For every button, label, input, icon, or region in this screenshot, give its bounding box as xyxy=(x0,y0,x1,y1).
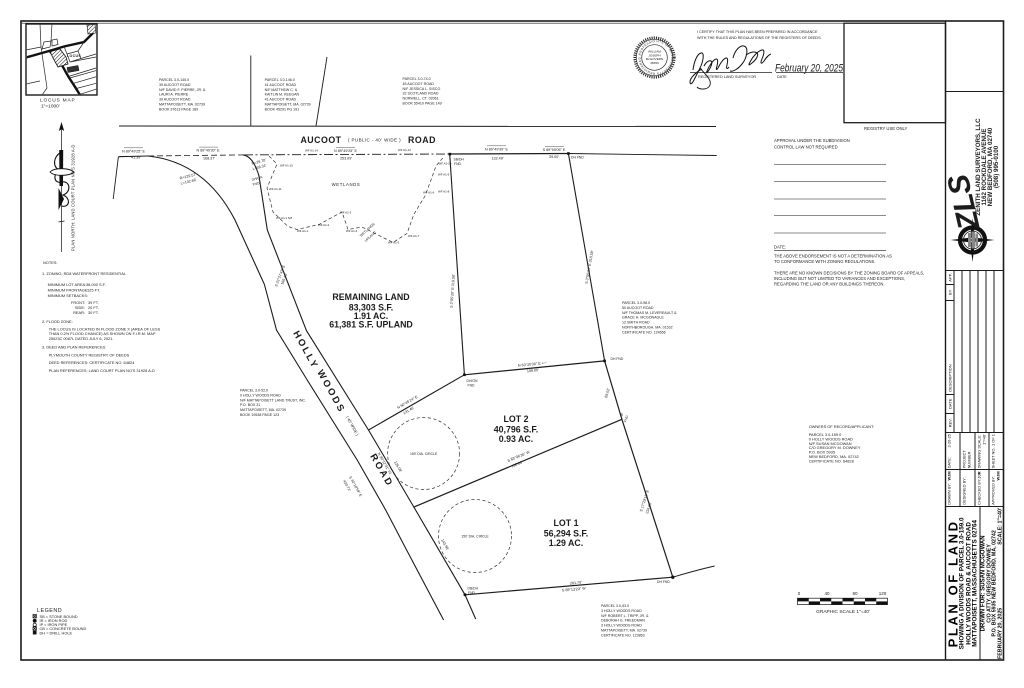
svg-text:NORWELL, CT. 02061: NORWELL, CT. 02061 xyxy=(403,97,439,101)
svg-text:PARCEL 3.0-146.0: PARCEL 3.0-146.0 xyxy=(265,78,295,82)
svg-text:32 SCOTLAND ROAD: 32 SCOTLAND ROAD xyxy=(403,92,439,96)
svg-text:APPROVAL UNDER THE SUBDIVISION: APPROVAL UNDER THE SUBDIVISION xyxy=(774,138,850,143)
svg-text:N 89°49'30" E: N 89°49'30" E xyxy=(485,147,509,151)
svg-text:WF A1-5: WF A1-5 xyxy=(388,241,400,245)
svg-text:INCLUDING BUT NOT LIMITED TO V: INCLUDING BUT NOT LIMITED TO VARIANCES A… xyxy=(774,276,905,281)
svg-text:36550: 36550 xyxy=(650,61,659,65)
svg-text:I CERTIFY THAT THIS PLAN HAS B: I CERTIFY THAT THIS PLAN HAS BEEN PREPAR… xyxy=(697,30,818,34)
svg-text:DH FND.: DH FND. xyxy=(657,580,671,584)
svg-text:0: 0 xyxy=(798,591,801,596)
svg-text:MATTAPOISETT, MA. 02739: MATTAPOISETT, MA. 02739 xyxy=(240,408,286,412)
svg-text:125 FT.: 125 FT. xyxy=(87,287,100,292)
svg-text:39 AUCOOT ROAD: 39 AUCOOT ROAD xyxy=(159,98,191,102)
svg-text:PARCEL 3.0-145.0: PARCEL 3.0-145.0 xyxy=(159,78,189,82)
svg-text:68.02': 68.02' xyxy=(604,387,611,398)
svg-text:CERTIFICATE NO. 123863: CERTIFICATE NO. 123863 xyxy=(601,633,645,637)
svg-text:GRACE H. MCGONAGLE: GRACE H. MCGONAGLE xyxy=(622,316,664,320)
svg-text:S 89°59'05" E: S 89°59'05" E xyxy=(543,148,566,152)
svg-text:N/F ROBERT L. TRIPP, JR. &: N/F ROBERT L. TRIPP, JR. & xyxy=(601,614,649,618)
svg-text:FND: FND xyxy=(468,591,476,595)
svg-text:PARCEL 3.0-93.0: PARCEL 3.0-93.0 xyxy=(601,604,629,608)
svg-text:N/F MATTHEW C. &: N/F MATTHEW C. & xyxy=(265,88,298,92)
svg-text:P.O. BOX 31: P.O. BOX 31 xyxy=(240,403,260,407)
svg-text:LOT 2: LOT 2 xyxy=(504,414,529,424)
svg-text:MATTAPOISETT, MA. 02739: MATTAPOISETT, MA. 02739 xyxy=(159,103,205,107)
svg-text:WF A1-14: WF A1-14 xyxy=(305,149,318,153)
svg-text:199.00': 199.00' xyxy=(527,368,540,373)
svg-text:N/F JESSICA L. SISCO: N/F JESSICA L. SISCO xyxy=(403,87,441,91)
svg-text:S 89°13'23" W: S 89°13'23" W xyxy=(562,586,587,592)
svg-text:WF A1-15: WF A1-15 xyxy=(280,164,293,168)
svg-text:56,294 S.F.: 56,294 S.F. xyxy=(544,529,589,539)
svg-text:N 89°49'30" E: N 89°49'30" E xyxy=(197,149,221,153)
svg-text:IP: IP xyxy=(620,412,625,417)
svg-text:40,796 S.F.: 40,796 S.F. xyxy=(494,425,539,435)
svg-text:SB/DH: SB/DH xyxy=(454,158,465,162)
svg-text:( 40' WIDE ): ( 40' WIDE ) xyxy=(345,415,360,437)
svg-text:150' DIA. CIRCLE: 150' DIA. CIRCLE xyxy=(461,535,489,539)
svg-text:WF A1-4: WF A1-4 xyxy=(346,229,358,233)
svg-text:TO CONFORMANCE WITH ZONING REG: TO CONFORMANCE WITH ZONING REGULATIONS. xyxy=(774,259,876,264)
svg-text:0.93 AC.: 0.93 AC. xyxy=(499,434,533,444)
svg-text:BOOK 55410 PAGE 149: BOOK 55410 PAGE 149 xyxy=(403,102,442,106)
svg-text:N 89°49'25" E: N 89°49'25" E xyxy=(334,149,358,153)
svg-text:WF A1-12: WF A1-12 xyxy=(398,148,411,152)
svg-text:WF A1-9: WF A1-9 xyxy=(438,173,450,177)
svg-text:WF A1-6: WF A1-6 xyxy=(423,191,435,195)
svg-text:39.00': 39.00' xyxy=(549,155,559,159)
svg-text:3 HOLLY WOODS ROAD: 3 HOLLY WOODS ROAD xyxy=(601,609,642,613)
svg-text:3 HOLLY WOODS ROAD: 3 HOLLY WOODS ROAD xyxy=(601,624,642,628)
svg-text:FND: FND xyxy=(468,384,476,388)
svg-text:BOOK 37613 PAGE 189: BOOK 37613 PAGE 189 xyxy=(159,107,198,111)
svg-text:120: 120 xyxy=(879,591,887,596)
svg-text:BOOK 45291 PG 191: BOOK 45291 PG 191 xyxy=(265,107,300,111)
svg-text:DEBORAH G. FREEDMAN: DEBORAH G. FREEDMAN xyxy=(601,619,645,623)
svg-text:131.46': 131.46' xyxy=(403,406,416,416)
svg-text:CONTROL LAW NOT REQUIRED: CONTROL LAW NOT REQUIRED xyxy=(774,145,838,150)
svg-text:61,381 S.F. UPLAND: 61,381 S.F. UPLAND xyxy=(329,320,413,330)
svg-text:WF A1-7: WF A1-7 xyxy=(408,234,420,238)
svg-text:NOTES:: NOTES: xyxy=(43,260,57,265)
svg-text:430.71': 430.71' xyxy=(342,480,351,493)
svg-text:N/F MATTAPOISETT LAND TRUST, I: N/F MATTAPOISETT LAND TRUST, INC. xyxy=(240,398,306,402)
svg-text:MINIMUM FRONTAGE:: MINIMUM FRONTAGE: xyxy=(48,287,89,292)
svg-text:REGISTERED LAND SURVEYOR: REGISTERED LAND SURVEYOR xyxy=(698,75,756,79)
svg-text:CERTIFICATE NO. 64828: CERTIFICATE NO. 64828 xyxy=(809,458,854,463)
svg-text:WETLANDS: WETLANDS xyxy=(332,182,361,187)
svg-text:25023C 0087L DATED JULY 6, 202: 25023C 0087L DATED JULY 6, 2021. xyxy=(49,336,114,341)
svg-text:PLYMOUTH COUNTY REGISTRY OF DE: PLYMOUTH COUNTY REGISTRY OF DEEDS xyxy=(49,352,130,357)
svg-text:80: 80 xyxy=(852,591,858,596)
svg-text:132.49': 132.49' xyxy=(492,156,504,160)
svg-text:(508) 995-0100: (508) 995-0100 xyxy=(993,145,1000,188)
svg-text:1.29 AC.: 1.29 AC. xyxy=(549,538,583,548)
svg-text:FND: FND xyxy=(252,181,260,187)
svg-text:LOT 1: LOT 1 xyxy=(554,518,579,528)
svg-text:253.09': 253.09' xyxy=(340,157,352,161)
svg-text:DH FND: DH FND xyxy=(611,357,624,361)
svg-text:MATTAPOISETT, MA. 02739: MATTAPOISETT, MA. 02739 xyxy=(601,629,647,633)
svg-text:190.00': 190.00' xyxy=(511,460,524,468)
svg-text:DB/DH: DB/DH xyxy=(468,587,479,591)
svg-text:41 AUCOOT ROAD: 41 AUCOOT ROAD xyxy=(265,98,297,102)
svg-text:HOLLY: HOLLY xyxy=(290,329,320,371)
svg-text:40: 40 xyxy=(824,591,830,596)
svg-text:REAR:: REAR: xyxy=(73,310,85,315)
svg-text:WF A1-2: WF A1-2 xyxy=(318,223,330,227)
svg-text:WF A1-8: WF A1-8 xyxy=(438,190,450,194)
svg-text:WF A1-11: WF A1-11 xyxy=(269,187,282,191)
svg-text:MINIMUM SETBACKS:: MINIMUM SETBACKS: xyxy=(48,293,88,298)
svg-text:41 AUCOOT ROAD: 41 AUCOOT ROAD xyxy=(265,83,297,87)
svg-text:NORTHBOROUGH, MA. 01532: NORTHBOROUGH, MA. 01532 xyxy=(622,326,673,330)
svg-text:THERE ARE NO KNOWN DECISIONS B: THERE ARE NO KNOWN DECISIONS BY THE ZONI… xyxy=(774,271,924,276)
svg-text:WF A1-1: WF A1-1 xyxy=(297,229,309,233)
svg-text:3. DEED AND PLAN REFERENCES:: 3. DEED AND PLAN REFERENCES: xyxy=(42,344,106,349)
svg-text:MINIMUM LOT AREA:: MINIMUM LOT AREA: xyxy=(48,282,87,287)
svg-text:168.37': 168.37' xyxy=(203,157,215,161)
svg-text:PARCEL 3.0-74.0: PARCEL 3.0-74.0 xyxy=(403,77,431,81)
svg-text:WITH THE RULES AND REGULATIONS: WITH THE RULES AND REGULATIONS OF THE RE… xyxy=(697,36,822,40)
svg-text:ROAD: ROAD xyxy=(408,135,436,145)
svg-text:2. FLOOD ZONE:: 2. FLOOD ZONE: xyxy=(42,319,73,324)
svg-text:FND: FND xyxy=(454,162,462,166)
svg-text:LEGEND: LEGEND xyxy=(37,608,62,614)
svg-text:DH = DRILL HOLE: DH = DRILL HOLE xyxy=(40,630,73,635)
svg-text:FND: FND xyxy=(623,414,629,422)
svg-text:38,000 S.F.: 38,000 S.F. xyxy=(86,282,106,287)
svg-text:45 AUCOOT ROAD: 45 AUCOOT ROAD xyxy=(403,82,435,86)
svg-text:MATTAPOISETT, MA. 02739: MATTAPOISETT, MA. 02739 xyxy=(265,103,311,107)
svg-text:143.96': 143.96' xyxy=(440,539,450,552)
svg-text:1"=1000': 1"=1000' xyxy=(41,104,60,110)
svg-text:AUCOOT: AUCOOT xyxy=(300,135,341,145)
svg-text:WF A1-3: WF A1-3 xyxy=(340,211,352,215)
svg-text:WOODS: WOODS xyxy=(314,368,347,415)
svg-text:PLAN REFERENCES: LAND COURT PL: PLAN REFERENCES: LAND COURT PLAN NO'S 31… xyxy=(49,368,155,373)
svg-text:CERTIFICATE NO. 124656: CERTIFICATE NO. 124656 xyxy=(622,330,666,334)
svg-text:LOCUS: LOCUS xyxy=(67,54,81,58)
svg-text:PARCEL 3.0-98.0: PARCEL 3.0-98.0 xyxy=(622,301,650,305)
svg-text:DATE:: DATE: xyxy=(774,245,786,250)
svg-text:REGISTRY USE ONLY: REGISTRY USE ONLY xyxy=(864,126,907,131)
svg-text:DATE: DATE xyxy=(777,75,787,79)
svg-text:50 AUCOOT ROAD: 50 AUCOOT ROAD xyxy=(622,306,654,310)
svg-text:REGARDING THE LAND OR ANY BUIL: REGARDING THE LAND OR ANY BUILDINGS THER… xyxy=(774,282,885,287)
svg-text:DEED REFERENCES: CERTIFICATE N: DEED REFERENCES: CERTIFICATE NO. 64824 xyxy=(49,360,136,365)
svg-text:WF A1-10: WF A1-10 xyxy=(439,162,452,166)
svg-text:150' DIA. CIRCLE: 150' DIA. CIRCLE xyxy=(410,452,438,456)
svg-text:S 3°05'30" E 318.58': S 3°05'30" E 318.58' xyxy=(450,274,456,308)
svg-text:0 HOLLY WOODS ROAD: 0 HOLLY WOODS ROAD xyxy=(240,393,281,397)
svg-text:PARCEL 3.0-52.0: PARCEL 3.0-52.0 xyxy=(240,389,268,393)
svg-text:HTS OF MASSACHUSETTS REGISTERE: HTS OF MASSACHUSETTS REGISTERED PROFESSI… xyxy=(0,0,674,76)
svg-text:125.08': 125.08' xyxy=(393,461,403,474)
svg-text:OWNERS OF RECORD/APPLICANT:: OWNERS OF RECORD/APPLICANT: xyxy=(809,424,874,429)
svg-text:THE ABOVE ENDORSEMENT IS NOT A: THE ABOVE ENDORSEMENT IS NOT A DETERMINA… xyxy=(774,254,892,259)
svg-text:PLAN NORTH: LAND COURT PLAN NO: PLAN NORTH: LAND COURT PLAN NO'S 31928 A… xyxy=(71,144,76,251)
svg-text:12 SMITH ROAD: 12 SMITH ROAD xyxy=(622,321,650,325)
svg-text:N/F DAVID F. PIERRE, JR. &: N/F DAVID F. PIERRE, JR. & xyxy=(159,88,206,92)
svg-text:30 FT.: 30 FT. xyxy=(88,310,99,315)
svg-text:1. ZONING: RD8 WATERFRONT RES: 1. ZONING: RD8 WATERFRONT RESIDENTIAL xyxy=(42,271,127,276)
svg-text:39 AUCOOT ROAD: 39 AUCOOT ROAD xyxy=(159,83,191,87)
svg-text:( PUBLIC - 40' WIDE ): ( PUBLIC - 40' WIDE ) xyxy=(348,138,401,143)
svg-text:LOCUS MAP: LOCUS MAP xyxy=(40,98,75,104)
svg-text:DH FND: DH FND xyxy=(571,155,584,159)
svg-text:N/F THOMAS M. LEVEREAULT &: N/F THOMAS M. LEVEREAULT & xyxy=(622,311,677,315)
svg-text:GRAPHIC SCALE 1"=40': GRAPHIC SCALE 1"=40' xyxy=(816,609,870,615)
svg-text:WF A1-1 5/8: WF A1-1 5/8 xyxy=(276,216,292,220)
svg-text:LAURI A. PIERRE: LAURI A. PIERRE xyxy=(159,93,189,97)
svg-text:BOOK 19538 PAGE 123: BOOK 19538 PAGE 123 xyxy=(240,413,279,417)
svg-text:N 89°49'25" E: N 89°49'25" E xyxy=(122,149,146,153)
svg-text:41.39': 41.39' xyxy=(131,155,141,159)
svg-text:DH/ON: DH/ON xyxy=(467,379,478,383)
svg-text:KAITLIN M. KEEGAN: KAITLIN M. KEEGAN xyxy=(265,93,300,97)
svg-text:REMAINING LAND: REMAINING LAND xyxy=(332,292,409,302)
